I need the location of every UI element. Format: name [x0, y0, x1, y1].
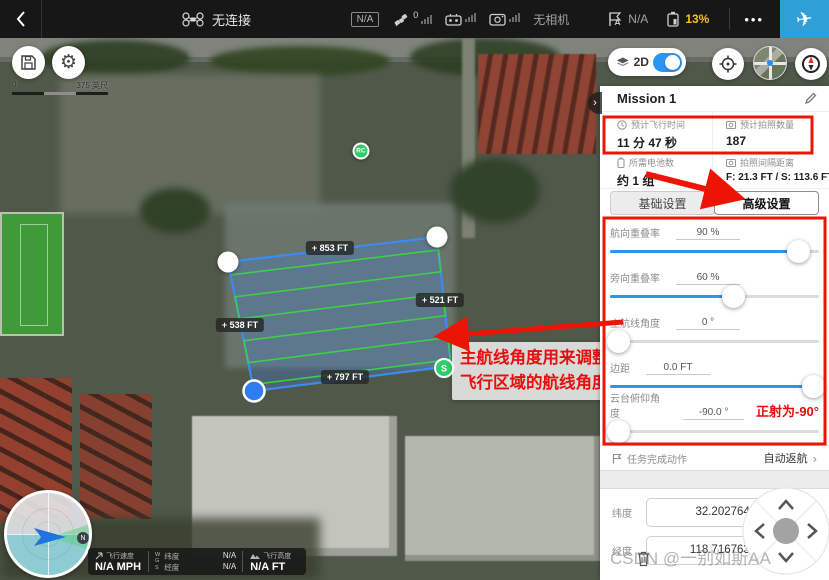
- settings-tabs: 基础设置 高级设置: [600, 188, 829, 218]
- scale-end-label: 375 英尺: [76, 80, 108, 91]
- 2d-label: 2D: [634, 55, 649, 69]
- finish-action-row[interactable]: 任务完成动作 自动返航 ›: [600, 445, 829, 470]
- telemetry-altitude: 飞行高度 N/A FT: [243, 548, 298, 575]
- delete-mission-button[interactable]: [636, 550, 651, 567]
- save-mission-button[interactable]: [12, 46, 45, 79]
- edge-length-left: + 538 FT: [216, 318, 264, 332]
- slider-group-margin: 边距 0.0 FT: [610, 353, 819, 398]
- settings-button[interactable]: ⚙: [52, 46, 85, 79]
- finish-flag-icon: [612, 453, 622, 464]
- rc-marker-label: RC: [356, 148, 365, 155]
- back-chevron-icon: [16, 11, 26, 27]
- stat-flight-time-value: 11 分 47 秒: [617, 134, 708, 151]
- edge-length-right: + 521 FT: [416, 293, 464, 307]
- slider-knob[interactable]: [722, 285, 745, 308]
- topbar-divider: [729, 8, 730, 30]
- map-sports-field: [0, 212, 64, 336]
- telemetry-lat-value: N/A: [223, 551, 236, 562]
- stat-flight-time: 预计飞行时间 11 分 47 秒: [600, 112, 712, 150]
- telemetry-coordinates: W G S 纬度N/A 经度N/A: [149, 548, 242, 575]
- mission-stats: 预计飞行时间 11 分 47 秒 预计拍照数量 187 所需电池数 约 1 组: [600, 112, 829, 188]
- attitude-compass: N: [4, 490, 92, 578]
- latitude-label: 纬度: [612, 505, 638, 520]
- telemetry-speed: 飞行速度 N/A MPH: [88, 548, 148, 575]
- camera-icon: [489, 13, 506, 26]
- more-options-button[interactable]: •••: [744, 12, 764, 27]
- edge-length-top: + 853 FT: [306, 241, 354, 255]
- dpad-center-button[interactable]: [773, 518, 799, 544]
- margin-value[interactable]: 0.0 FT: [646, 362, 710, 375]
- save-icon: [20, 54, 37, 71]
- camera-signal-bars: [509, 13, 520, 22]
- gear-icon: ⚙: [60, 51, 77, 74]
- flight-mode-value: N/A: [628, 12, 648, 26]
- chevron-right-icon: ›: [813, 451, 817, 466]
- drone-icon: [182, 12, 204, 27]
- stat-photo-interval-value: F: 21.3 FT / S: 113.6 FT: [726, 172, 825, 183]
- photo-count-icon: [726, 120, 736, 129]
- remote-controller-icon: [445, 13, 462, 26]
- compass-icon: [801, 54, 821, 74]
- slider-group-course-overlap: 航向重叠率 90 %: [610, 218, 819, 263]
- slider-knob[interactable]: [607, 330, 630, 353]
- edge-length-bottom: + 797 FT: [321, 370, 369, 384]
- aircraft-heading-icon: [34, 528, 66, 546]
- stat-photo-count-value: 187: [726, 134, 825, 148]
- camera-status-text: 无相机: [533, 11, 569, 28]
- course-overlap-slider[interactable]: [610, 240, 819, 263]
- satellite-icon: [393, 13, 410, 28]
- route-angle-slider[interactable]: [610, 330, 819, 353]
- satellite-signal-bars: [421, 15, 432, 24]
- battery-percent: 13%: [685, 12, 709, 26]
- longitude-label: 经度: [612, 543, 638, 558]
- annotation-note: 主航线角度用来调整 飞行区域的航线角度: [452, 342, 617, 400]
- route-angle-value[interactable]: 0 °: [676, 317, 740, 330]
- stat-battery-count-value: 约 1 组: [617, 172, 708, 189]
- slider-knob[interactable]: [802, 375, 825, 398]
- slider-knob[interactable]: [787, 240, 810, 263]
- margin-slider[interactable]: [610, 375, 819, 398]
- nudge-dpad[interactable]: [740, 485, 829, 577]
- remote-controller-status: [445, 13, 476, 26]
- telemetry-bar: 飞行速度 N/A MPH W G S 纬度N/A 经度N/A: [88, 548, 306, 575]
- side-overlap-slider[interactable]: [610, 285, 819, 308]
- gimbal-pitch-value[interactable]: -90.0 °: [683, 407, 744, 420]
- slider-group-side-overlap: 旁向重叠率 60 %: [610, 263, 819, 308]
- finish-action-value: 自动返航: [764, 450, 808, 466]
- mission-panel: Mission 1 预计飞行时间 11 分 47 秒 预计拍照数量 187: [600, 86, 829, 580]
- gimbal-pitch-slider[interactable]: [610, 420, 819, 443]
- airplane-icon: ✈: [794, 5, 814, 32]
- speed-arrow-icon: [95, 552, 103, 560]
- stat-photo-count: 预计拍照数量 187: [712, 112, 829, 150]
- rc-signal-bars: [465, 13, 476, 22]
- back-button[interactable]: [0, 0, 42, 38]
- camera-link-status: [489, 13, 520, 26]
- flight-mode-status: N/A: [607, 12, 648, 27]
- tab-advanced-settings[interactable]: 高级设置: [714, 191, 819, 215]
- altitude-icon: [250, 552, 260, 560]
- clock-icon: [617, 120, 627, 130]
- stat-battery-count: 所需电池数 约 1 组: [600, 150, 712, 188]
- north-badge: N: [77, 532, 89, 544]
- battery-pack-icon: [617, 157, 625, 168]
- map-mode-thumbnail[interactable]: [753, 46, 787, 80]
- app-screen: 无连接 N/A 0: [0, 0, 829, 580]
- aircraft-connection-status: 无连接: [212, 10, 251, 29]
- compass-north-button[interactable]: [795, 48, 827, 80]
- battery-icon: [666, 11, 680, 27]
- altitude-value: N/A FT: [250, 561, 291, 573]
- side-overlap-value[interactable]: 60 %: [676, 272, 740, 285]
- mission-header: Mission 1: [600, 86, 829, 112]
- gps-status-badge: N/A: [351, 12, 380, 27]
- slider-knob[interactable]: [607, 420, 630, 443]
- vertex-handle-bottom-left-selected[interactable]: [244, 381, 265, 402]
- flight-mode-icon: [607, 12, 623, 27]
- slider-group-gimbal-pitch: 云台俯仰角度 -90.0 ° 正射为-90°: [610, 398, 819, 443]
- layers-icon: [616, 56, 630, 69]
- top-status-bar: 无连接 N/A 0: [0, 0, 829, 38]
- locate-button[interactable]: [712, 48, 744, 80]
- telemetry-lng-value: N/A: [223, 562, 236, 573]
- map-scale: 0 375 英尺: [12, 80, 108, 95]
- gimbal-pitch-annotation: 正射为-90°: [756, 401, 819, 420]
- speed-value: N/A MPH: [95, 561, 141, 573]
- mission-title: Mission 1: [617, 91, 804, 106]
- advanced-settings-sliders: 航向重叠率 90 % 旁向重叠率 60 % 主航线角度: [600, 218, 829, 445]
- photo-interval-icon: [726, 158, 736, 167]
- scale-start-label: 0: [12, 80, 16, 91]
- scale-bar: [12, 92, 108, 95]
- course-overlap-value[interactable]: 90 %: [676, 227, 740, 240]
- rc-position-marker: RC: [353, 143, 370, 160]
- edit-pencil-icon[interactable]: [804, 92, 817, 105]
- tab-basic-settings[interactable]: 基础设置: [610, 191, 715, 215]
- satellite-count: 0: [413, 10, 418, 20]
- battery-status: 13%: [666, 11, 709, 27]
- stat-photo-interval: 拍照间隔距离 F: 21.3 FT / S: 113.6 FT: [712, 150, 829, 188]
- satellite-status: 0: [393, 10, 432, 28]
- map-2d-toggle[interactable]: 2D: [608, 48, 686, 76]
- crosshair-icon: [719, 55, 737, 73]
- slider-group-route-angle: 主航线角度 0 °: [610, 308, 819, 353]
- 2d-toggle-switch[interactable]: [653, 53, 682, 72]
- takeoff-button[interactable]: ✈: [780, 0, 829, 38]
